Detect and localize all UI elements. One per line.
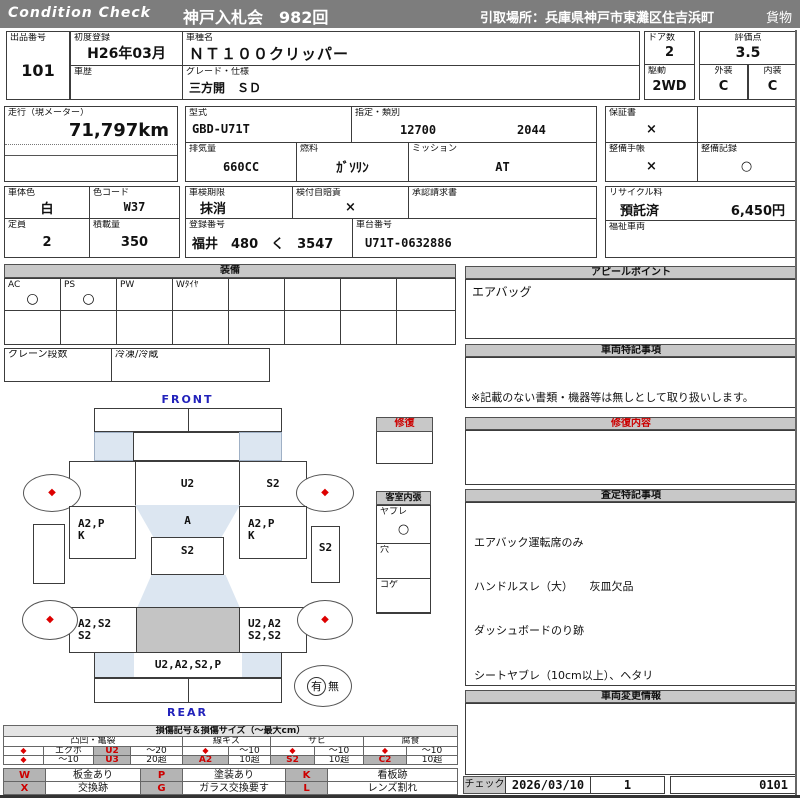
equipment-cell-ps: PS ○ (60, 278, 117, 311)
insurance-cell: 検付自賠責 × (292, 186, 409, 219)
door-left: A2,P K (69, 506, 136, 559)
registration-number-cell: 登録番号 福井 480 く 3547 (185, 218, 353, 258)
check-code-value: 0101 (671, 777, 796, 793)
diagram-rear-label: REAR (130, 706, 245, 719)
load-capacity-cell: 積載量 350 (89, 218, 180, 258)
cabin-tear-value: ○ (377, 515, 430, 543)
color-code-cell: 色コード W37 (89, 186, 180, 219)
grade-cell: グレード・仕様 三方開 ＳＤ (182, 65, 640, 100)
bed-right-damage-mark-2: S2,S2 (248, 630, 281, 642)
equipment-wtire-label: Wﾀｲﾔ (176, 280, 226, 290)
lot-number-cell: 出品番号 101 (6, 31, 70, 100)
equipment-pw-label: PW (120, 280, 170, 290)
legend-label-k: 看板跡 (327, 768, 458, 782)
fuel-value: ｶﾞｿﾘﾝ (297, 152, 408, 181)
tailgate: U2,A2,S2,P (94, 652, 282, 678)
front-bumper (94, 408, 282, 432)
type-number-value: 12700 (400, 124, 436, 136)
hood-panel: U2 (135, 461, 240, 507)
type-class-cell: 指定・類別 12700 2044 (351, 106, 597, 143)
drive-cell: 駆動 2WD (644, 64, 695, 100)
doors-value: 2 (645, 41, 694, 64)
check-count-cell: 1 (590, 776, 665, 794)
legend-label-x: 交換跡 (45, 781, 141, 795)
damage-diamond-icon: ◆ (321, 488, 329, 498)
cargo-badge: 貨物 (766, 7, 792, 26)
truck-bed (136, 607, 240, 653)
door-left-damage-mark-2: K (78, 530, 85, 542)
repair-box: 修復 (376, 417, 433, 464)
legend-code-k: K (285, 768, 328, 782)
presence-yes-circled: 有 (307, 677, 326, 696)
exterior-grade-cell: 外装 C (699, 64, 748, 100)
chassis-number-cell: 車台番号 U71T-0632886 (352, 218, 597, 258)
recycle-fee-cell: リサイクル料 預託済 6,450円 (605, 186, 796, 221)
type-class-label: 指定・類別 (355, 108, 594, 118)
side-step-left (33, 524, 65, 584)
legend-rust-size-2: 10超 (314, 755, 364, 765)
equipment-cell-empty-6 (60, 310, 117, 345)
appeal-content: エアバッグ (472, 283, 532, 300)
equipment-cell-empty-10 (284, 310, 341, 345)
vehicle-notes-body: ※記載のない書類・機器等は無しとして取り扱いします。 (465, 357, 797, 408)
rear-bumper-divider (188, 679, 189, 702)
damage-diamond-icon: ◆ (46, 615, 54, 625)
equipment-cell-wtire: Wﾀｲﾔ (172, 278, 229, 311)
exterior-grade-value: C (700, 74, 747, 99)
cab-roof-damage-mark: S2 (152, 545, 223, 557)
check-label-cell: チェック (463, 776, 506, 794)
mileage-divider-dotted (5, 144, 177, 145)
inspection-value: 抹消 (186, 196, 292, 218)
legend-label-l: レンズ割れ (327, 781, 458, 795)
lot-number-value: 101 (7, 41, 69, 99)
legend-label-w: 板金あり (45, 768, 141, 782)
change-info-header: 車両変更情報 (465, 690, 797, 703)
appeal-section-header: アピールポイント (465, 266, 797, 279)
equipment-cell-empty-5 (4, 310, 61, 345)
equipment-cell-ac: AC ○ (4, 278, 61, 311)
welfare-vehicle-label: 福祉車両 (609, 222, 793, 232)
door-right-damage-mark-2: K (248, 530, 255, 542)
recycle-fee-value: 6,450円 (731, 200, 785, 219)
registration-number-value: 福井 480 く 3547 (186, 228, 352, 257)
front-pillar-left (94, 432, 134, 461)
bed-side-left: A2,S2 S2 (69, 607, 137, 653)
top-bar: Condition Check 神戸入札会 982回 引取場所：兵庫県神戸市東灘… (0, 0, 800, 28)
wheel-left: ◆ (22, 600, 78, 640)
capacity-cell: 定員 2 (4, 218, 90, 258)
pickup-location: 引取場所：兵庫県神戸市東灘区住吉浜町 (480, 7, 714, 26)
cabin-burn-label: コゲ (380, 580, 428, 590)
condition-check-sheet: Condition Check 神戸入札会 982回 引取場所：兵庫県神戸市東灘… (0, 0, 800, 800)
mileage-cell: 走行（現メーター） 71,797km (4, 106, 178, 182)
wheel-right: ◆ (297, 600, 353, 640)
first-registration-cell: 初度登録 H26年03月 (70, 31, 183, 66)
front-fender-right: S2 (239, 461, 307, 507)
repair-detail-body (465, 430, 797, 485)
mileage-divider-solid (5, 155, 177, 156)
equipment-ps-value: ○ (61, 288, 116, 310)
legend-dent-symbol-2: ◆ (3, 755, 44, 765)
assessment-line: エアバック運転席のみ (474, 536, 792, 551)
check-date-cell: 2026/03/10 (505, 776, 591, 794)
color-code-value: W37 (90, 196, 179, 218)
legend-code-x: X (3, 781, 46, 795)
equipment-cell-pw: PW (116, 278, 173, 311)
rear-window (137, 575, 240, 608)
repair-detail-header: 修復内容 (465, 417, 797, 430)
equipment-cell-empty-11 (340, 310, 397, 345)
damage-diamond-icon: ◆ (321, 615, 329, 625)
assessment-header: 査定特記事項 (465, 489, 797, 502)
interior-grade-cell: 内装 C (748, 64, 797, 100)
cabin-row-tear: ヤブレ ○ (376, 505, 431, 544)
body-color-cell: 車体色 白 (4, 186, 90, 219)
windshield-damage-mark: A (135, 515, 240, 527)
legend-dent-label-2: ～10 (43, 755, 94, 765)
equipment-cell-empty-8 (172, 310, 229, 345)
interior-grade-value: C (749, 74, 796, 99)
check-date-value: 2026/03/10 (506, 777, 590, 793)
recycle-status-value: 預託済 (620, 200, 659, 219)
vehicle-notes-footnote: ※記載のない書類・機器等は無しとして取り扱いします。 (471, 389, 754, 405)
cabin-row-hole: 穴 (376, 543, 431, 579)
displacement-value: 660CC (186, 152, 296, 181)
warranty-cell: 保証書 × (605, 106, 698, 143)
door-right: A2,P K (239, 506, 307, 559)
maintenance-book-value: × (606, 152, 697, 181)
equipment-cell-empty-3 (340, 278, 397, 311)
equipment-cell-empty-7 (116, 310, 173, 345)
change-info-body (465, 703, 797, 775)
model-code-cell: 型式 GBD-U71T (185, 106, 352, 143)
legend-dent-size-2: 20超 (130, 755, 183, 765)
maintenance-record-value: ○ (698, 152, 795, 181)
displacement-cell: 排気量 660CC (185, 142, 297, 182)
front-fender-left (69, 461, 136, 507)
transmission-cell: ミッション AT (408, 142, 597, 182)
cabin-row-burn: コゲ (376, 578, 431, 614)
presence-no: 無 (328, 678, 339, 694)
maintenance-record-cell: 整備記録 ○ (697, 142, 796, 182)
mileage-value: 71,797km (5, 117, 169, 143)
freezer-cell: 冷凍/冷蔵 (111, 348, 270, 382)
cab-roof: S2 (151, 537, 224, 575)
tailgate-damage-mark: U2,A2,S2,P (95, 659, 281, 671)
check-code-cell: 0101 (670, 776, 797, 794)
cabin-interior-header: 客室内張 (376, 491, 431, 505)
cabin-hole-label: 穴 (380, 545, 428, 555)
legend-code-g: G (140, 781, 183, 795)
equipment-cell-empty-9 (228, 310, 285, 345)
side-gate-right: S2 (311, 526, 340, 583)
damage-diamond-icon: ◆ (48, 488, 56, 498)
rear-bumper (94, 678, 282, 703)
equipment-cell-empty-12 (396, 310, 456, 345)
first-registration-value: H26年03月 (71, 41, 182, 65)
warranty-empty-cell (697, 106, 796, 143)
diagram-front-label: FRONT (130, 393, 245, 406)
legend-corrosion-code: C2 (363, 755, 407, 765)
vehicle-history-label: 車歴 (74, 67, 180, 77)
cabin-interior-box: 客室内張 ヤブレ ○ 穴 コゲ (376, 491, 431, 613)
legend-scratch-code: A2 (182, 755, 229, 765)
bed-left-damage-mark-2: S2 (78, 630, 91, 642)
front-bumper-divider (188, 409, 189, 431)
assessment-line: ハンドルスレ（大） 灰皿欠品 (474, 580, 792, 595)
legend-code-l: L (285, 781, 328, 795)
model-code-value: GBD-U71T (186, 116, 351, 142)
equipment-ac-value: ○ (5, 288, 60, 310)
repair-box-header: 修復 (376, 417, 433, 432)
legend-rust-code: S2 (270, 755, 315, 765)
sheet-right-edge (795, 30, 797, 795)
legend-code-w: W (3, 768, 46, 782)
vehicle-notes-header: 車両特記事項 (465, 344, 797, 357)
damage-diamond-icon: ◆ (20, 755, 26, 765)
presence-marker: 有 無 (294, 665, 352, 707)
equipment-cell-empty-1 (228, 278, 285, 311)
appeal-section-body: エアバッグ (465, 279, 797, 339)
equipment-section-header: 装備 (4, 264, 456, 278)
approval-request-cell: 承認請求書 (408, 186, 597, 219)
check-count-value: 1 (591, 777, 664, 793)
inspection-cell: 車検期限 抹消 (185, 186, 293, 219)
front-panel (133, 432, 240, 461)
model-name-cell: 車種名 ＮＴ１００クリッパー (182, 31, 640, 66)
sheet-bottom-edge (0, 795, 800, 798)
legend-label-p: 塗装あり (182, 768, 286, 782)
grade-value: 三方開 ＳＤ (183, 75, 639, 99)
assessment-line: シートヤブレ（10cm以上）、ヘタリ (474, 669, 792, 684)
drive-value: 2WD (645, 74, 694, 99)
legend-code-p: P (140, 768, 183, 782)
bed-side-right: U2,A2 S2,S2 (239, 607, 307, 653)
warranty-value: × (606, 116, 697, 142)
insurance-value: × (293, 196, 408, 218)
freezer-label: 冷凍/冷蔵 (115, 350, 267, 360)
recycle-fee-label: リサイクル料 (609, 188, 793, 198)
fuel-cell: 燃料 ｶﾞｿﾘﾝ (296, 142, 409, 182)
score-value: 3.5 (700, 41, 796, 64)
windshield: A (135, 505, 240, 538)
hood-damage-mark: U2 (136, 478, 239, 490)
score-cell: 評価点 3.5 (699, 31, 797, 65)
chassis-number-value: U71T-0632886 (353, 228, 596, 257)
maintenance-book-cell: 整備手帳 × (605, 142, 698, 182)
vehicle-history-cell: 車歴 (70, 65, 183, 100)
front-pillar-right (239, 432, 282, 461)
equipment-cell-empty-2 (284, 278, 341, 311)
side-gate-right-damage-mark: S2 (312, 542, 339, 554)
transmission-value: AT (409, 152, 596, 181)
capacity-value: 2 (5, 228, 89, 257)
class-number-value: 2044 (517, 124, 546, 136)
assessment-body: エアバック運転席のみ ハンドルスレ（大） 灰皿欠品 ダッシュボードのり跡 シート… (465, 502, 797, 686)
doors-cell: ドア数 2 (644, 31, 695, 65)
model-name-value: ＮＴ１００クリッパー (183, 41, 639, 65)
brand-title: Condition Check (8, 5, 151, 21)
welfare-vehicle-cell: 福祉車両 (605, 220, 796, 258)
legend-label-g: ガラス交換要す (182, 781, 286, 795)
assessment-line: ダッシュボードのり跡 (474, 624, 792, 639)
approval-request-label: 承認請求書 (412, 188, 594, 198)
load-capacity-value: 350 (90, 228, 179, 257)
crane-stage-cell: クレーン段数 (4, 348, 112, 382)
body-color-value: 白 (5, 196, 89, 218)
legend-corrosion-size-2: 10超 (406, 755, 458, 765)
crane-stage-label: クレーン段数 (8, 350, 109, 360)
legend-dent-code-2: U3 (93, 755, 131, 765)
auction-title: 神戸入札会 982回 (183, 4, 328, 28)
equipment-cell-empty-4 (396, 278, 456, 311)
legend-scratch-size-2: 10超 (228, 755, 271, 765)
